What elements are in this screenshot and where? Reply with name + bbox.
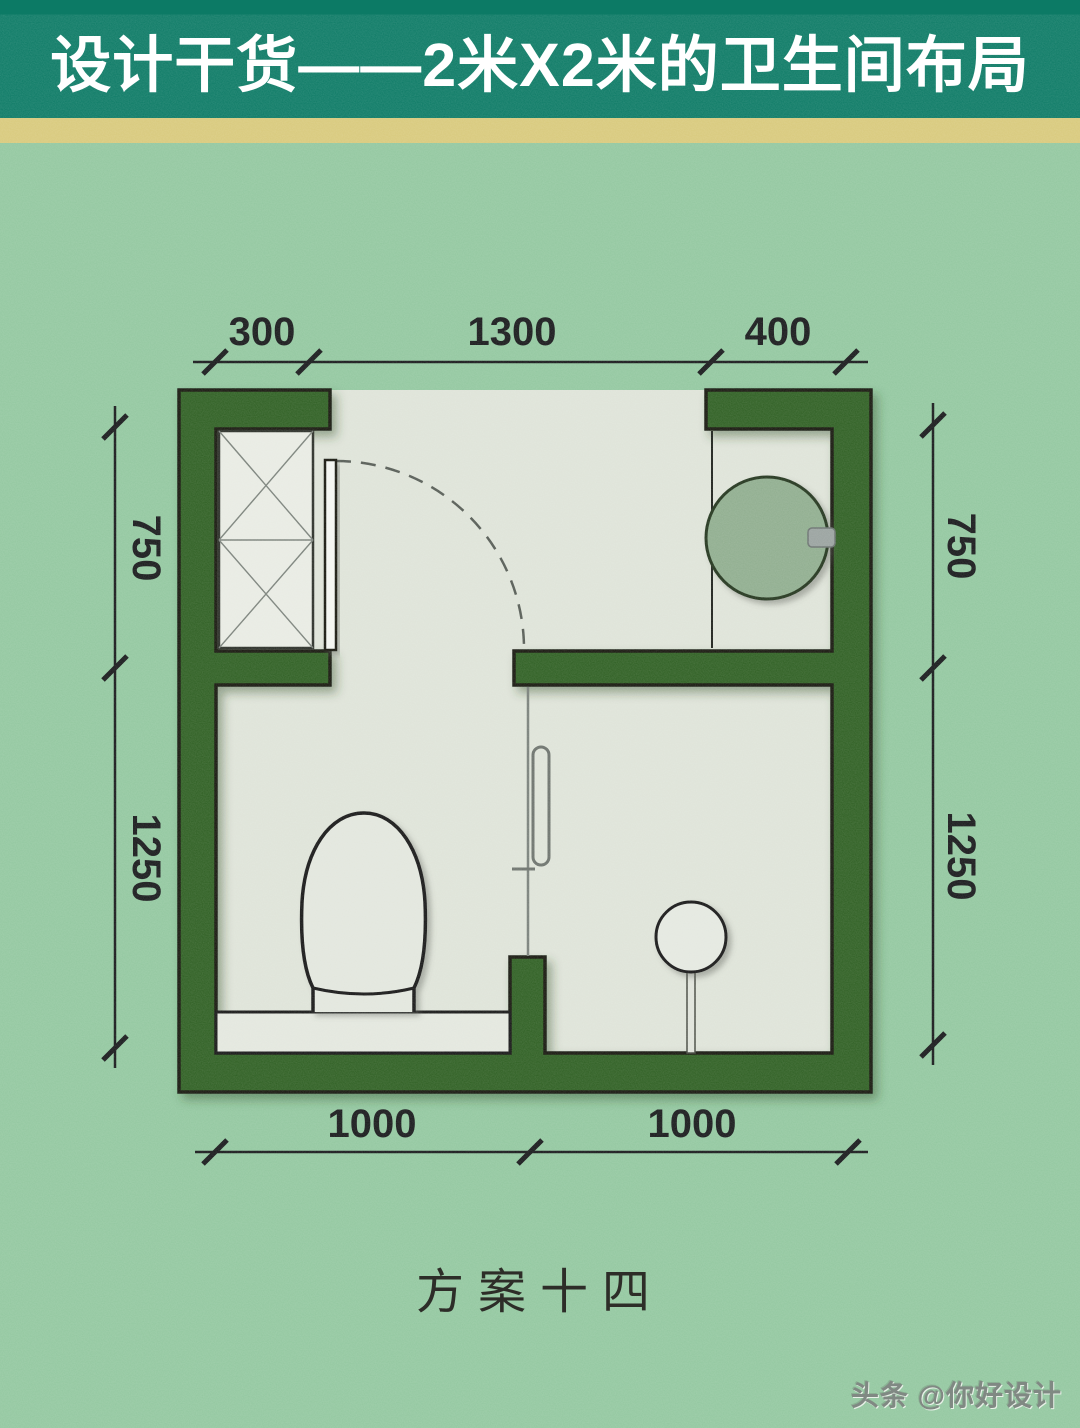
dimension-top: 300 1300 400 [193, 310, 868, 374]
dim-label-bottom-2: 1000 [648, 1102, 737, 1146]
dimension-left: 750 1250 [103, 406, 168, 1068]
floor-area [179, 390, 871, 1092]
dim-label-right-1: 750 [939, 513, 983, 580]
floor-plan: 300 1300 400 750 1250 750 1250 1000 1000 [0, 0, 1080, 1428]
dim-label-top-2: 1300 [468, 310, 557, 354]
dim-label-left-1: 750 [124, 515, 168, 582]
page-title: 设计干货——2米X2米的卫生间布局 [50, 15, 1030, 104]
watermark: 头条 @你好设计 [851, 1374, 1062, 1414]
dimension-right: 750 1250 [921, 403, 983, 1065]
dim-ticks [921, 413, 945, 1057]
header-bar: 设计干货——2米X2米的卫生间布局 [0, 0, 1080, 118]
dim-label-bottom-1: 1000 [328, 1102, 417, 1146]
partition-handle [533, 747, 549, 865]
dim-label-top-1: 300 [229, 310, 296, 354]
gold-divider [0, 118, 1080, 143]
toilet-bowl [302, 813, 426, 1012]
cabinet-cross-pattern [219, 431, 313, 648]
basin-faucet [808, 528, 835, 547]
shower [656, 902, 726, 1053]
toilet [216, 813, 510, 1053]
dim-label-top-3: 400 [745, 310, 812, 354]
basin-bowl [706, 477, 828, 599]
toilet-tank [216, 1012, 510, 1053]
dimension-bottom: 1000 1000 [195, 1102, 868, 1164]
plan-caption: 方案十四 [0, 1252, 1080, 1322]
dim-ticks [203, 350, 858, 374]
entry-door [325, 460, 524, 650]
noise-texture [0, 143, 1080, 1428]
glass-partition [512, 687, 549, 956]
shower-head [656, 902, 726, 972]
dim-ticks [103, 415, 127, 1060]
dim-ticks [203, 1140, 860, 1164]
washbasin [706, 431, 835, 648]
cabinet [219, 431, 313, 648]
dim-label-right-2: 1250 [939, 812, 983, 901]
cabinet-box [219, 431, 313, 648]
door-swing-arc [336, 461, 524, 649]
dim-label-left-2: 1250 [124, 814, 168, 903]
door-leaf [325, 460, 336, 650]
walls [179, 390, 871, 1092]
shower-pole [687, 935, 695, 1053]
toilet-bowl-rim [313, 988, 414, 994]
